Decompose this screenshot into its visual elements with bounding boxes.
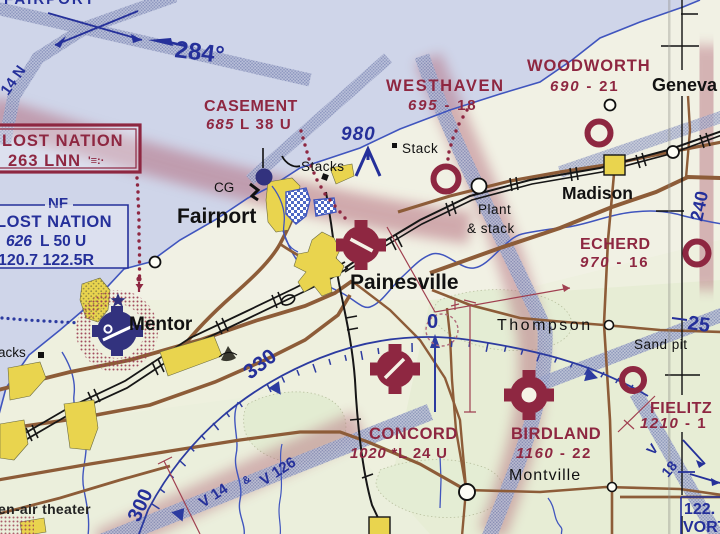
svg-text:CONCORD: CONCORD xyxy=(369,425,458,443)
svg-text:Geneva: Geneva xyxy=(652,75,718,95)
svg-text:695 - 18: 695 - 18 xyxy=(408,97,477,114)
svg-text:Madison: Madison xyxy=(562,183,633,203)
svg-text:Sand pit: Sand pit xyxy=(634,337,688,352)
svg-text:CASEMENT: CASEMENT xyxy=(204,98,298,115)
svg-text:en-air theater: en-air theater xyxy=(0,501,91,517)
svg-text:0: 0 xyxy=(427,311,438,333)
svg-text:WESTHAVEN: WESTHAVEN xyxy=(386,77,505,95)
svg-text:Fairport: Fairport xyxy=(177,205,256,228)
svg-text:'≡:·: '≡:· xyxy=(88,155,104,167)
svg-text:Plant: Plant xyxy=(478,202,511,217)
svg-text:acks: acks xyxy=(0,345,26,360)
svg-text:Stack: Stack xyxy=(402,141,438,156)
svg-text:Montville: Montville xyxy=(509,467,581,484)
svg-text:690 - 21: 690 - 21 xyxy=(550,78,619,95)
svg-text:25: 25 xyxy=(686,312,711,337)
svg-text:Painesville: Painesville xyxy=(350,271,459,294)
svg-text:970 - 16: 970 - 16 xyxy=(580,254,649,271)
svg-text:263 LNN: 263 LNN xyxy=(8,152,81,170)
svg-text:122.: 122. xyxy=(684,501,715,518)
svg-text:120.7 122.5R: 120.7 122.5R xyxy=(0,252,95,269)
svg-text:CG: CG xyxy=(214,180,234,195)
svg-text:626: 626 xyxy=(6,233,32,250)
svg-text:1210 - 1: 1210 - 1 xyxy=(640,415,707,432)
svg-text:LOST NATION: LOST NATION xyxy=(0,213,112,231)
svg-text:VORT: VORT xyxy=(683,519,720,534)
svg-text:ECHERD: ECHERD xyxy=(580,236,651,253)
svg-text:1020 *L 24 U: 1020 *L 24 U xyxy=(350,445,448,462)
svg-text:1160 - 22: 1160 - 22 xyxy=(516,445,592,462)
svg-text:980: 980 xyxy=(341,124,376,145)
svg-text:BIRDLAND: BIRDLAND xyxy=(511,425,601,443)
svg-text:& stack: & stack xyxy=(467,221,515,236)
svg-text:L 50 U: L 50 U xyxy=(40,233,86,250)
svg-text:Stacks: Stacks xyxy=(301,159,345,174)
svg-text:LOST NATION: LOST NATION xyxy=(2,132,124,150)
svg-text:Thompson: Thompson xyxy=(497,317,593,334)
svg-text:FAIRPORT: FAIRPORT xyxy=(4,0,96,8)
svg-text:WOODWORTH: WOODWORTH xyxy=(527,57,651,75)
svg-text:685 L 38 U: 685 L 38 U xyxy=(206,116,292,133)
svg-text:Mentor: Mentor xyxy=(129,314,193,335)
